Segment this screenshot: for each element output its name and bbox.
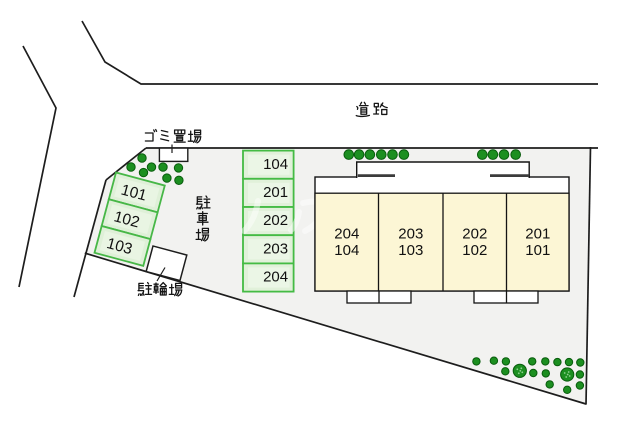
svg-text:202: 202 <box>462 226 487 243</box>
svg-text:101: 101 <box>525 242 550 259</box>
svg-text:103: 103 <box>398 242 423 259</box>
svg-text:201: 201 <box>525 226 550 243</box>
svg-text:104: 104 <box>334 242 359 259</box>
svg-text:201: 201 <box>263 184 288 201</box>
svg-text:104: 104 <box>263 156 288 173</box>
svg-text:203: 203 <box>398 226 423 243</box>
svg-text:204: 204 <box>263 269 288 286</box>
svg-text:102: 102 <box>462 242 487 259</box>
svg-text:202: 202 <box>263 212 288 229</box>
svg-text:203: 203 <box>263 240 288 257</box>
svg-text:204: 204 <box>334 226 359 243</box>
